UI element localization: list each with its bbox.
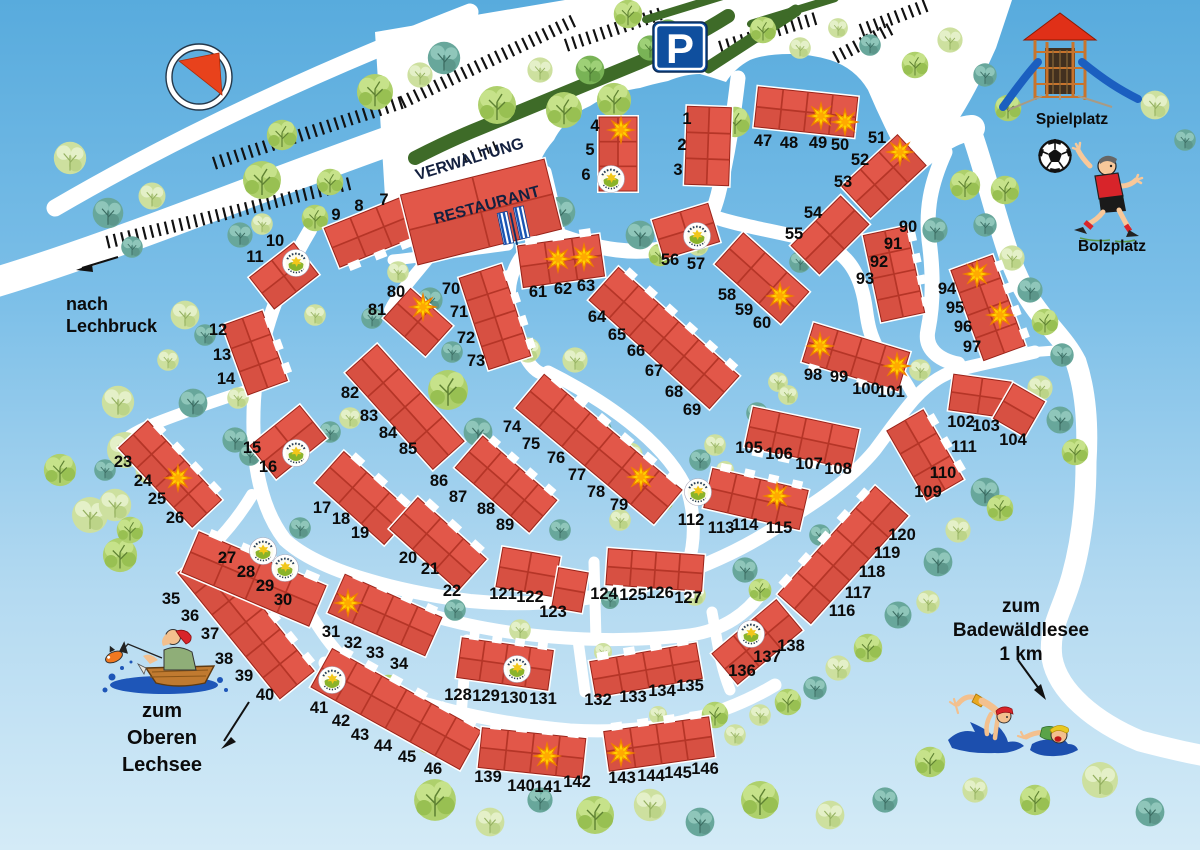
svg-text:19: 19 [351,524,369,542]
svg-text:58: 58 [718,286,736,304]
svg-text:116: 116 [829,602,856,620]
svg-text:92: 92 [870,253,888,271]
svg-text:106: 106 [765,445,793,463]
svg-text:146: 146 [691,760,719,778]
svg-text:62: 62 [554,280,572,298]
svg-text:118: 118 [859,563,886,581]
svg-text:zum: zum [142,700,182,722]
svg-text:11: 11 [246,248,263,266]
svg-text:Lechsee: Lechsee [122,754,202,776]
svg-text:112: 112 [678,511,705,529]
svg-text:94: 94 [938,280,957,298]
svg-text:59: 59 [735,301,753,319]
svg-text:35: 35 [162,590,180,608]
svg-text:128: 128 [444,686,472,704]
svg-text:51: 51 [868,129,886,147]
svg-text:29: 29 [256,577,274,595]
svg-text:98: 98 [804,366,822,384]
svg-text:88: 88 [477,500,495,518]
svg-text:57: 57 [687,255,705,273]
svg-text:25: 25 [148,490,166,508]
svg-text:53: 53 [834,173,852,191]
svg-text:138: 138 [777,637,805,655]
svg-text:121: 121 [489,585,517,603]
svg-text:79: 79 [610,496,628,514]
svg-text:119: 119 [874,544,901,562]
svg-text:99: 99 [830,368,848,386]
svg-text:40: 40 [256,686,274,704]
svg-text:70: 70 [442,280,460,298]
svg-text:43: 43 [351,726,369,744]
svg-text:41: 41 [310,699,328,717]
svg-text:17: 17 [313,499,331,517]
svg-text:49: 49 [809,134,827,152]
svg-text:36: 36 [181,607,199,625]
svg-text:8: 8 [354,197,363,215]
svg-text:81: 81 [368,301,386,319]
svg-text:143: 143 [608,769,636,787]
svg-text:7: 7 [379,191,388,209]
svg-text:55: 55 [785,225,803,243]
svg-text:24: 24 [134,472,153,490]
svg-text:113: 113 [708,519,735,537]
svg-text:56: 56 [661,251,679,269]
svg-text:97: 97 [963,338,981,356]
svg-text:Lechbruck: Lechbruck [66,316,158,336]
svg-text:9: 9 [331,206,340,224]
svg-text:10: 10 [266,232,284,250]
svg-text:132: 132 [584,691,612,709]
svg-text:102: 102 [947,413,975,431]
svg-text:85: 85 [399,440,417,458]
svg-text:104: 104 [999,431,1027,449]
svg-text:93: 93 [856,270,874,288]
svg-text:90: 90 [899,218,917,236]
svg-text:87: 87 [449,488,467,506]
svg-text:131: 131 [529,690,557,708]
svg-text:13: 13 [213,346,231,364]
svg-text:76: 76 [547,449,565,467]
svg-text:100: 100 [852,380,880,398]
svg-text:60: 60 [753,314,771,332]
svg-text:50: 50 [831,136,849,154]
svg-text:80: 80 [387,283,405,301]
svg-text:4: 4 [590,117,600,135]
svg-text:63: 63 [577,277,595,295]
svg-text:130: 130 [500,689,528,707]
svg-text:109: 109 [914,483,942,501]
svg-text:115: 115 [766,519,793,537]
svg-text:1 km: 1 km [999,644,1042,665]
svg-text:Badewäldlesee: Badewäldlesee [953,620,1089,641]
svg-text:34: 34 [390,655,409,673]
svg-text:26: 26 [166,509,184,527]
svg-text:Oberen: Oberen [127,727,197,749]
svg-text:144: 144 [637,767,665,785]
svg-text:135: 135 [676,677,704,695]
svg-text:145: 145 [664,764,692,782]
svg-text:103: 103 [972,417,1000,435]
svg-text:54: 54 [804,204,823,222]
svg-text:134: 134 [648,682,676,700]
svg-text:nach: nach [66,294,108,314]
svg-text:83: 83 [360,407,378,425]
svg-text:142: 142 [563,773,591,791]
svg-text:67: 67 [645,362,663,380]
svg-text:77: 77 [568,466,586,484]
svg-text:61: 61 [529,283,547,301]
svg-text:73: 73 [467,352,485,370]
svg-text:20: 20 [399,549,417,567]
svg-text:71: 71 [450,303,468,321]
svg-text:107: 107 [795,455,823,473]
svg-text:108: 108 [824,460,852,478]
svg-text:23: 23 [114,453,132,471]
svg-text:111: 111 [951,438,977,456]
svg-text:69: 69 [683,401,701,419]
svg-text:86: 86 [430,472,448,490]
svg-text:16: 16 [259,458,277,476]
svg-text:125: 125 [619,586,647,604]
svg-text:64: 64 [588,308,607,326]
svg-text:14: 14 [217,370,236,388]
svg-text:21: 21 [421,560,439,578]
svg-text:1: 1 [682,110,691,128]
svg-text:110: 110 [930,464,957,482]
svg-text:140: 140 [507,777,535,795]
svg-text:45: 45 [398,748,416,766]
svg-text:42: 42 [332,712,350,730]
svg-text:68: 68 [665,383,683,401]
svg-text:124: 124 [590,585,618,603]
svg-text:32: 32 [344,634,362,652]
svg-text:46: 46 [424,760,442,778]
svg-text:44: 44 [374,737,393,755]
svg-text:120: 120 [888,526,916,544]
svg-text:33: 33 [366,644,384,662]
svg-text:zum: zum [1002,596,1040,617]
svg-text:28: 28 [237,563,255,581]
svg-text:39: 39 [235,667,253,685]
svg-text:5: 5 [585,141,594,159]
svg-text:Spielplatz: Spielplatz [1036,111,1109,128]
svg-text:78: 78 [587,483,605,501]
svg-text:105: 105 [735,439,763,457]
svg-text:2: 2 [677,136,686,154]
svg-text:47: 47 [754,132,772,150]
svg-text:3: 3 [673,161,682,179]
svg-text:91: 91 [884,235,902,253]
svg-text:139: 139 [474,768,502,786]
svg-text:141: 141 [534,778,562,796]
svg-text:75: 75 [522,435,540,453]
svg-text:126: 126 [646,584,674,602]
svg-text:123: 123 [539,603,567,621]
svg-text:22: 22 [443,582,461,600]
svg-text:136: 136 [728,662,756,680]
svg-text:114: 114 [732,516,759,534]
svg-text:15: 15 [243,439,261,457]
svg-text:52: 52 [851,151,869,169]
svg-text:6: 6 [581,166,590,184]
svg-text:82: 82 [341,384,359,402]
svg-text:74: 74 [503,418,522,436]
svg-text:84: 84 [379,424,398,442]
svg-text:89: 89 [496,516,514,534]
svg-text:101: 101 [877,383,905,401]
svg-text:96: 96 [954,318,972,336]
svg-text:27: 27 [218,549,236,567]
svg-text:P: P [666,25,694,72]
svg-text:66: 66 [627,342,645,360]
svg-text:37: 37 [201,625,219,643]
svg-text:127: 127 [674,589,702,607]
svg-text:Bolzplatz: Bolzplatz [1078,238,1146,255]
svg-text:65: 65 [608,326,626,344]
svg-text:72: 72 [457,329,475,347]
svg-text:18: 18 [332,510,350,528]
svg-text:38: 38 [215,650,233,668]
svg-text:31: 31 [322,623,340,641]
svg-text:12: 12 [209,321,227,339]
svg-text:95: 95 [946,299,964,317]
svg-text:129: 129 [472,687,500,705]
svg-text:117: 117 [845,584,872,602]
svg-text:48: 48 [780,134,798,152]
svg-text:30: 30 [274,591,292,609]
svg-text:133: 133 [619,688,647,706]
